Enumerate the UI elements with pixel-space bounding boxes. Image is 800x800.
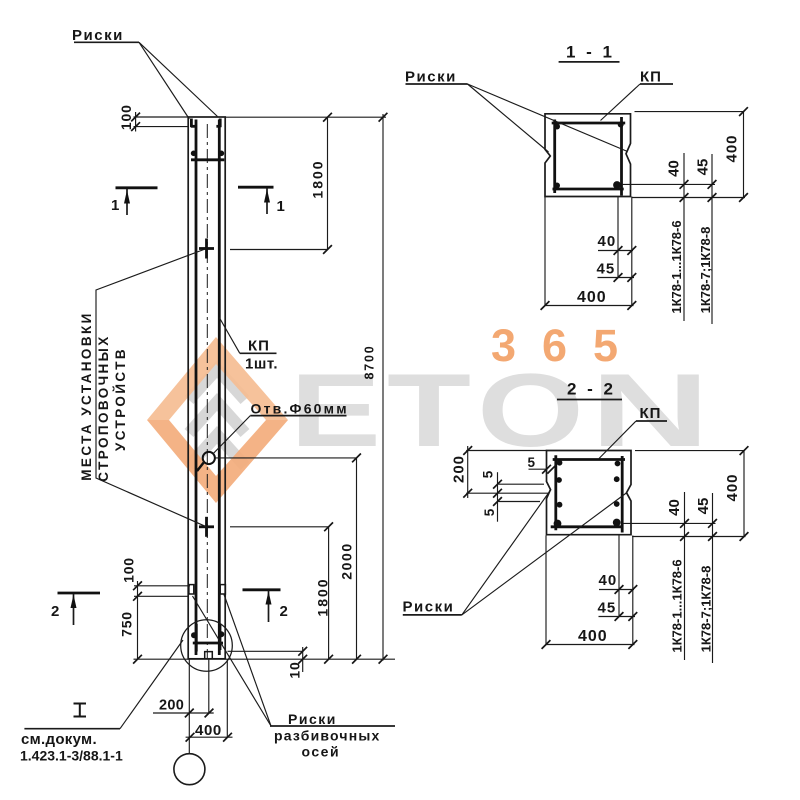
svg-text:см.докум.: см.докум. <box>21 731 97 748</box>
svg-text:100: 100 <box>118 104 134 130</box>
svg-text:КП: КП <box>248 338 270 355</box>
svg-text:1800: 1800 <box>309 159 325 198</box>
svg-text:1: 1 <box>277 198 285 215</box>
svg-text:1шт.: 1шт. <box>245 356 278 373</box>
svg-text:Отв.Ф60мм: Отв.Ф60мм <box>251 401 349 417</box>
svg-text:40: 40 <box>666 160 683 177</box>
svg-text:400: 400 <box>577 289 607 306</box>
svg-text:365: 365 <box>491 320 644 371</box>
svg-text:1800: 1800 <box>314 577 330 616</box>
svg-text:1: 1 <box>111 197 119 214</box>
svg-text:разбивочных: разбивочных <box>274 728 381 744</box>
svg-text:8700: 8700 <box>363 344 377 379</box>
svg-text:45: 45 <box>597 261 616 278</box>
svg-text:200: 200 <box>159 698 184 714</box>
svg-text:750: 750 <box>119 611 135 637</box>
svg-text:10: 10 <box>287 661 303 678</box>
svg-text:2000: 2000 <box>339 542 355 580</box>
svg-text:5: 5 <box>528 455 536 470</box>
svg-text:2: 2 <box>51 603 59 620</box>
svg-text:400: 400 <box>724 134 741 162</box>
svg-text:200: 200 <box>451 455 468 483</box>
svg-text:400: 400 <box>195 722 222 739</box>
svg-text:УСТРОЙСТВ: УСТРОЙСТВ <box>113 347 128 451</box>
svg-text:2 - 2: 2 - 2 <box>567 380 616 399</box>
svg-text:40: 40 <box>598 233 617 250</box>
svg-text:Риски: Риски <box>288 711 337 727</box>
svg-text:МЕСТА УСТАНОВКИ: МЕСТА УСТАНОВКИ <box>79 311 94 480</box>
svg-text:1 - 1: 1 - 1 <box>566 43 615 62</box>
svg-text:1.423.1-3/88.1-1: 1.423.1-3/88.1-1 <box>20 748 123 764</box>
svg-text:5: 5 <box>481 470 496 478</box>
svg-text:Риски: Риски <box>403 599 455 616</box>
svg-text:1К78-1...1К78-6: 1К78-1...1К78-6 <box>669 220 684 313</box>
svg-text:КП: КП <box>640 69 662 86</box>
svg-text:45: 45 <box>695 159 712 176</box>
svg-text:1К78-7;1К78-8: 1К78-7;1К78-8 <box>698 227 713 314</box>
svg-text:100: 100 <box>121 557 137 583</box>
svg-text:КП: КП <box>640 405 662 422</box>
svg-text:5: 5 <box>482 508 497 516</box>
svg-text:2: 2 <box>280 603 288 620</box>
svg-text:Риски: Риски <box>405 69 457 86</box>
svg-text:СТРОПОВОЧНЫХ: СТРОПОВОЧНЫХ <box>96 334 111 481</box>
svg-text:T: T <box>387 353 471 469</box>
svg-text:осей: осей <box>302 744 341 760</box>
